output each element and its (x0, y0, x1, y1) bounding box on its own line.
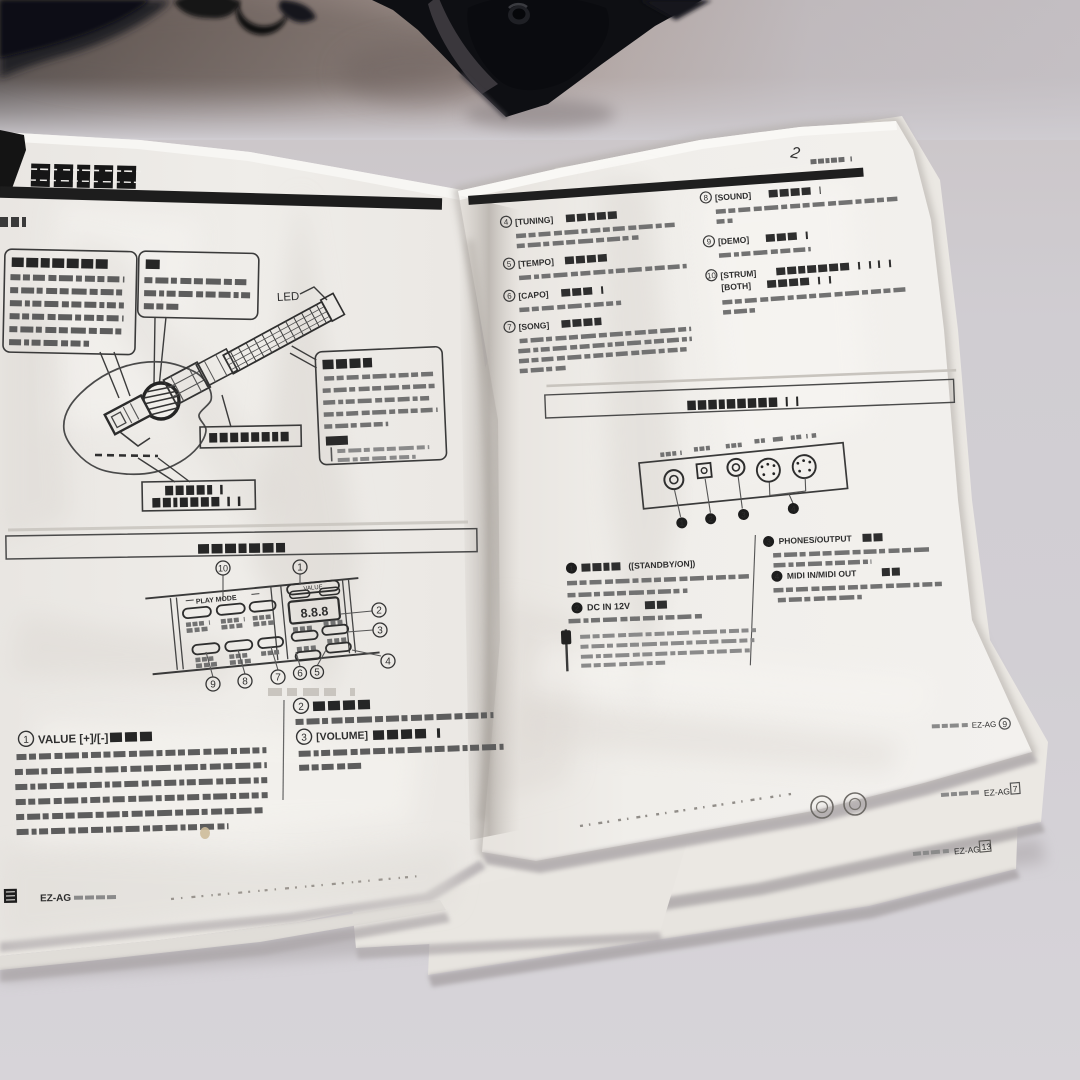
svg-text:EZ-AG: EZ-AG (40, 893, 72, 905)
svg-text:4: 4 (385, 657, 391, 668)
svg-text:DC IN 12V: DC IN 12V (587, 601, 630, 613)
svg-text:9: 9 (1002, 719, 1007, 729)
svg-text:5: 5 (314, 668, 320, 679)
svg-text:[VOLUME]: [VOLUME] (316, 729, 368, 743)
svg-text:1: 1 (23, 735, 29, 746)
svg-text:7: 7 (275, 673, 281, 684)
svg-text:1: 1 (297, 563, 303, 574)
svg-text:6: 6 (297, 669, 303, 680)
svg-text:LED: LED (277, 291, 300, 304)
svg-text:[BOTH]: [BOTH] (721, 280, 752, 292)
svg-text:VALUE [+]/[-]: VALUE [+]/[-] (38, 733, 109, 747)
svg-text:2: 2 (376, 606, 382, 617)
svg-text:10: 10 (218, 564, 228, 574)
svg-text:8.8.8: 8.8.8 (300, 604, 329, 621)
svg-text:9: 9 (210, 680, 216, 691)
svg-text:10: 10 (707, 271, 717, 281)
svg-text:EZ-AG: EZ-AG (972, 720, 997, 730)
svg-text:2: 2 (298, 702, 304, 713)
svg-text:13: 13 (981, 841, 992, 852)
svg-text:3: 3 (377, 626, 383, 637)
svg-text:8: 8 (242, 677, 248, 688)
svg-text:3: 3 (301, 733, 307, 744)
svg-text:EZ-AG: EZ-AG (984, 786, 1011, 798)
